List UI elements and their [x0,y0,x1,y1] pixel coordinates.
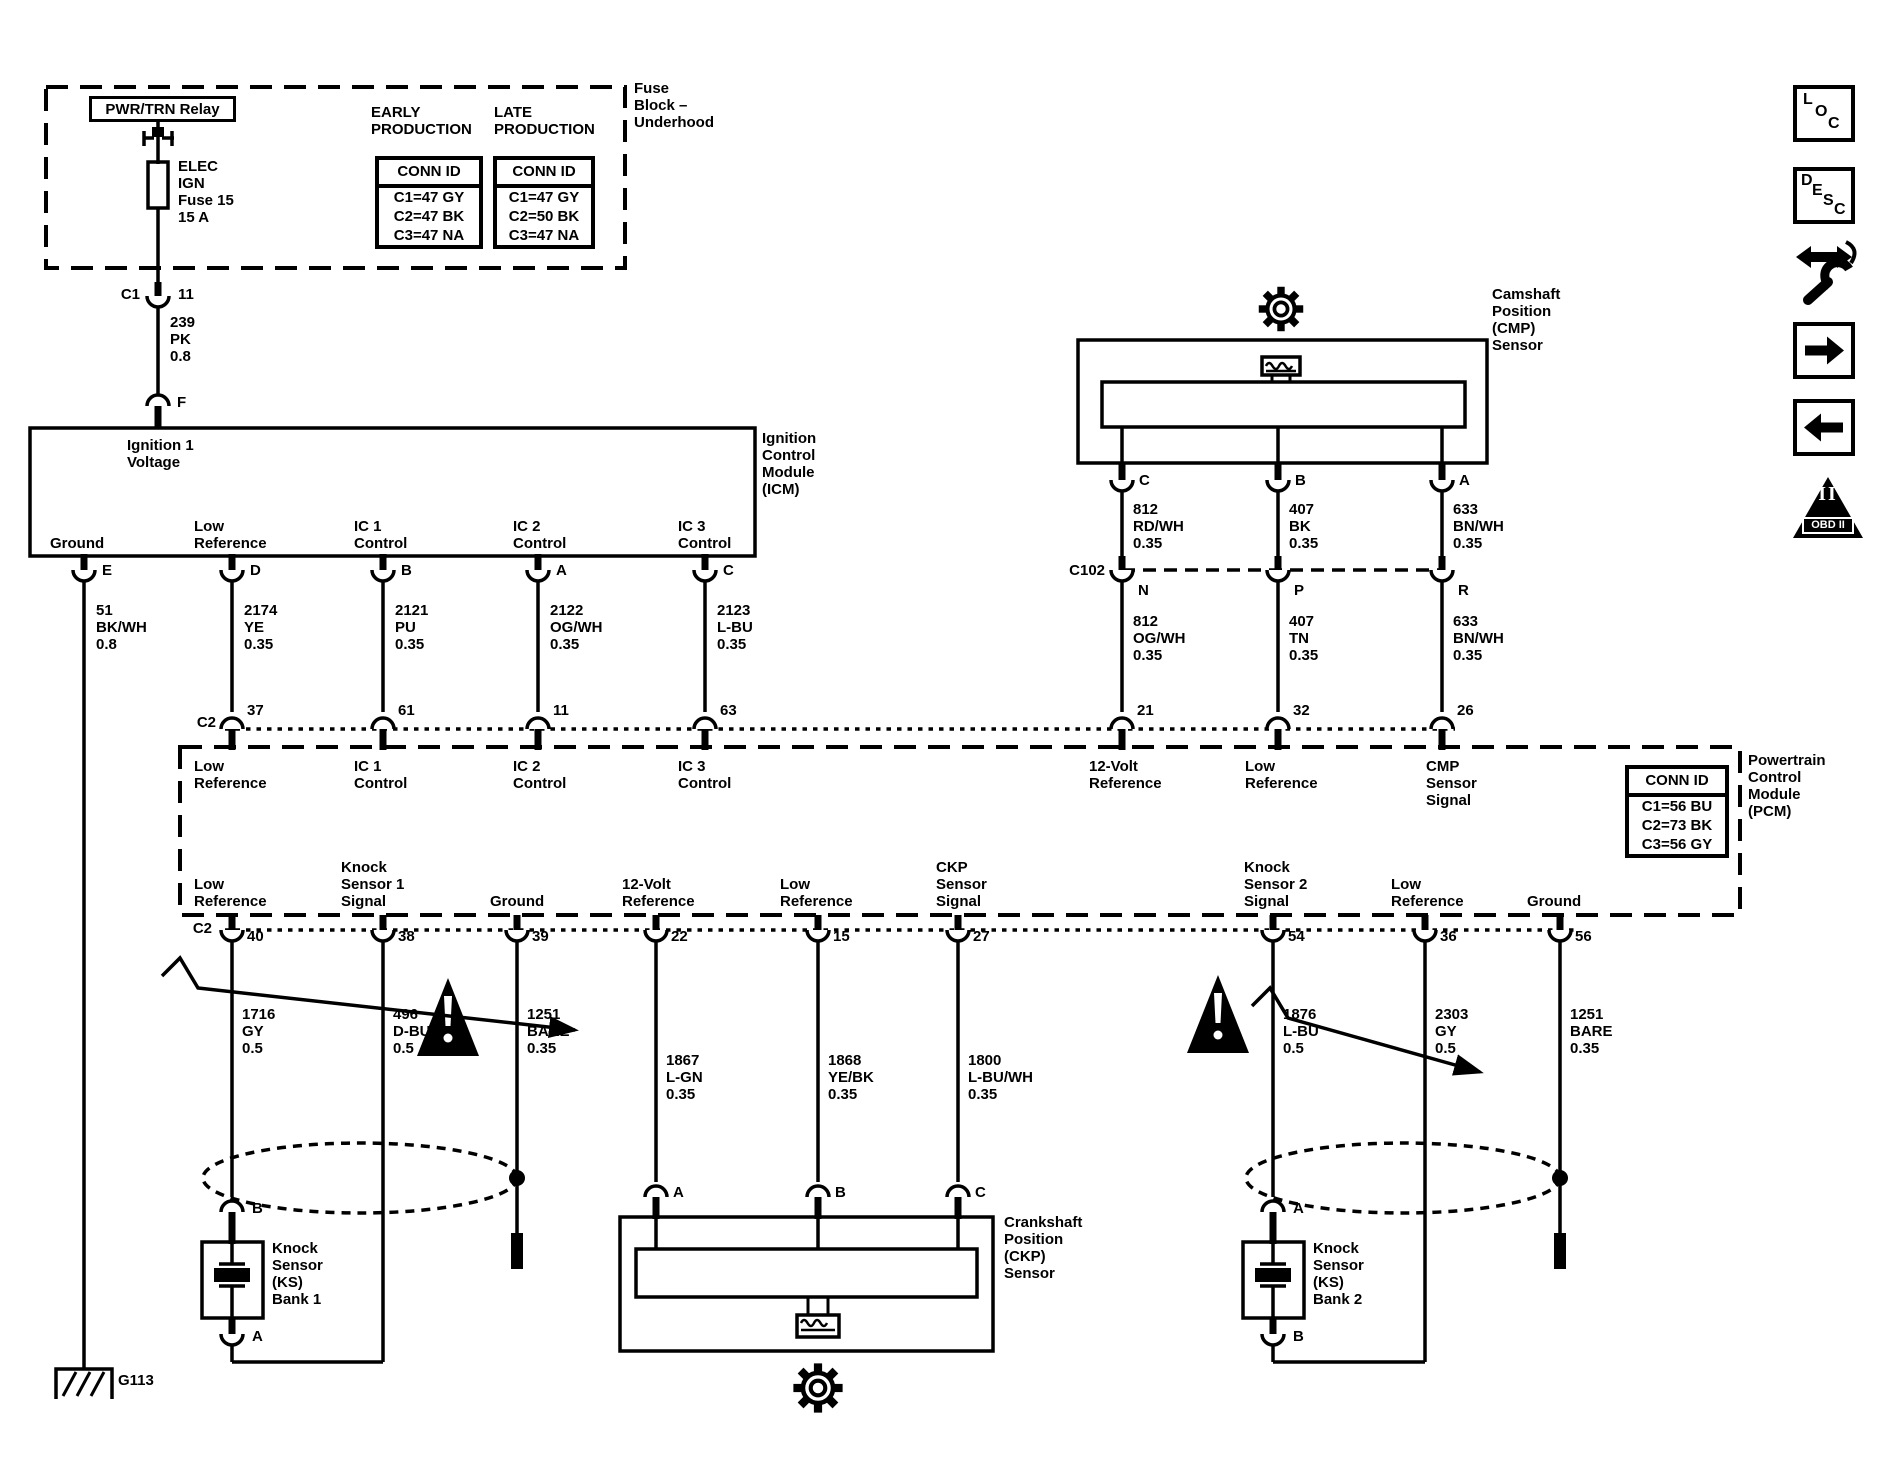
wire-spec: 51 BK/WH 0.8 [96,602,147,653]
connector-cup [221,718,243,729]
wire-spec: 239 PK 0.8 [170,314,195,365]
pcm-pin-number: 63 [720,702,737,719]
ks2-bottom-pin-letter: B [1293,1328,1304,1345]
connector-cup [1111,718,1133,729]
ks1-bottom-pin-letter: A [252,1328,263,1345]
back-arrow-button[interactable] [1793,399,1855,456]
pcm-pin-number: 32 [1293,702,1310,719]
pcm-pin-number: 38 [398,928,415,945]
pcm-pin-function: Low Reference [780,876,853,910]
wire-spec: 1868 YE/BK 0.35 [828,1052,874,1103]
ks1-top-pin-letter: B [252,1200,263,1217]
cmp-sensor-label: Camshaft Position (CMP) Sensor [1492,286,1560,354]
pcm-outside-label: Powertrain Control Module (PCM) [1748,752,1826,820]
table-header: CONN ID [379,160,479,188]
connector-cup [1262,1201,1284,1212]
wire-spec: 407 TN 0.35 [1289,613,1318,664]
wiring-diagram-canvas: PWR/TRN Relay ELEC IGN Fuse 15 15 A Fuse… [0,0,1901,1476]
connector-cup [1111,570,1133,581]
wire-spec: 1251 BARE 0.35 [1570,1006,1613,1057]
pcm-pin-function: 12-Volt Reference [1089,758,1162,792]
icm-pin-letter: A [556,562,567,579]
pcm-pin-function: IC 1 Control [354,758,407,792]
ks2-label: Knock Sensor (KS) Bank 2 [1313,1240,1364,1308]
ckp-inner-bar [636,1249,977,1297]
piezo-element [1255,1268,1291,1282]
cmp-element [1262,357,1300,375]
wire-spec: 2174 YE 0.35 [244,602,277,653]
connector-cup [221,1334,243,1345]
ckp-element [797,1315,839,1337]
table-row: C3=47 NA [497,226,591,245]
c102-pin-letter: P [1294,582,1304,599]
pcm-conn-id-table: CONN ID C1=56 BU C2=73 BK C3=56 GY [1625,765,1729,858]
icm-pin-letter: C [723,562,734,579]
relay-contact [152,127,164,137]
connector-cup [947,1186,969,1197]
ckp-pin-letter: B [835,1184,846,1201]
c102-pin-letter: N [1138,582,1149,599]
wire-spec: 407 BK 0.35 [1289,501,1318,552]
loc-button[interactable]: LOC [1793,85,1855,142]
icm-pin-letter: D [250,562,261,579]
pcm-pin-number: 11 [553,702,569,719]
connector-cup [527,570,549,581]
c102-pin-letter: R [1458,582,1469,599]
loc-letter: L [1803,92,1813,108]
fuse-label: ELEC IGN Fuse 15 15 A [178,158,234,226]
forward-arrow-button[interactable] [1793,322,1855,379]
connector-c1-pin: 11 [178,286,194,303]
fuse-block-label: Fuse Block – Underhood [634,80,714,131]
table-row: C2=47 BK [379,207,479,226]
connector-cup [1431,570,1453,581]
wire-spec: 1800 L-BU/WH 0.35 [968,1052,1033,1103]
wire [77,1372,90,1396]
pcm-pin-function: CMP Sensor Signal [1426,758,1477,809]
cmp-pin-letter: A [1459,472,1470,489]
wire [91,1372,104,1396]
pcm-pin-number: 37 [247,702,264,719]
late-conn-id-table: CONN ID C1=47 GY C2=50 BK C3=47 NA [493,156,595,249]
table-row: C2=50 BK [497,207,591,226]
desc-letter: S [1823,193,1834,209]
connector-cup [947,930,969,941]
wrench-swap-icon[interactable] [1792,236,1864,311]
pcm-pin-number: 27 [973,928,990,945]
connector-c102-label: C102 [1043,562,1105,579]
fuse-symbol [148,162,168,208]
note-arrow [162,958,575,1030]
early-production-heading: EARLY PRODUCTION [371,104,472,138]
wire-spec: 496 D-BU 0.5 [393,1006,431,1057]
ckp-pin-letter: A [673,1184,684,1201]
ckp-sensor-label: Crankshaft Position (CKP) Sensor [1004,1214,1082,1282]
desc-letter: E [1812,183,1823,199]
icm-pin-function: IC 1 Control [354,518,407,552]
wire [63,1372,76,1396]
ckp-pin-letter: C [975,1184,986,1201]
pcm-pin-function: IC 2 Control [513,758,566,792]
table-row: C1=47 GY [379,188,479,207]
icm-pin-letter: B [401,562,412,579]
warning-exclamation-dot [444,1034,453,1043]
pcm-pin-function: IC 3 Control [678,758,731,792]
shield-terminal [1554,1233,1566,1269]
pcm-pin-number: 36 [1440,928,1457,945]
wire-spec: 2121 PU 0.35 [395,602,428,653]
piezo-element [214,1268,250,1282]
pcm-pin-function: Ground [490,893,544,910]
connector-cup [1414,930,1436,941]
wire-spec: 2122 OG/WH 0.35 [550,602,603,653]
ks1-label: Knock Sensor (KS) Bank 1 [272,1240,323,1308]
connector-cup [1549,930,1571,941]
table-header: CONN ID [497,160,591,188]
loc-letter: O [1815,104,1827,120]
connector-cup [1431,480,1453,491]
wire-spec: 2303 GY 0.5 [1435,1006,1468,1057]
wire-spec: 2123 L-BU 0.35 [717,602,753,653]
wire-spec: 812 OG/WH 0.35 [1133,613,1186,664]
pcm-pin-number: 56 [1575,928,1592,945]
pcm-pin-number: 54 [1288,928,1305,945]
connector-cup [147,296,169,307]
gear-icon [1259,287,1303,331]
pcm-pin-number: 21 [1137,702,1154,719]
pcm-pin-function: Knock Sensor 1 Signal [341,859,404,910]
junction-dot [509,1170,525,1186]
loc-letter: C [1828,116,1840,132]
connector-cup [807,930,829,941]
connector-cup [147,395,169,406]
connector-cup [1267,570,1289,581]
cmp-pin-letter: C [1139,472,1150,489]
connector-cup [221,570,243,581]
connector-cup [221,1201,243,1212]
shield-terminal [511,1233,523,1269]
desc-button[interactable]: DESC [1793,167,1855,224]
pcm-top-connector-label: C2 [172,714,216,731]
connector-cup [1267,718,1289,729]
ground-label: G113 [118,1372,154,1389]
pcm-pin-function: Low Reference [1245,758,1318,792]
desc-letter: D [1801,173,1813,189]
connector-cup [1111,480,1133,491]
wire-spec: 633 BN/WH 0.35 [1453,613,1504,664]
wire-spec: 633 BN/WH 0.35 [1453,501,1504,552]
icm-pin-function: Ground [50,535,104,552]
pcm-pin-number: 15 [833,928,850,945]
connector-cup [372,930,394,941]
connector-cup [1431,718,1453,729]
pcm-pin-number: 61 [398,702,415,719]
table-row: C1=56 BU [1629,797,1725,816]
connector-cup [1267,480,1289,491]
cmp-inner-bar [1102,382,1465,427]
connector-c1-label: C1 [96,286,140,303]
connector-cup [1262,1334,1284,1345]
icm-pin-function: Low Reference [194,518,267,552]
wire-spec: 1867 L-GN 0.35 [666,1052,703,1103]
shield-ellipse [203,1143,517,1213]
early-conn-id-table: CONN ID C1=47 GY C2=47 BK C3=47 NA [375,156,483,249]
connector-cup [694,718,716,729]
icm-pin-function: IC 3 Control [678,518,731,552]
icm-input-label: Ignition 1 Voltage [127,437,194,471]
pwr-trn-relay-box: PWR/TRN Relay [89,96,236,122]
pcm-bottom-connector-label: C2 [168,920,212,937]
icm-outside-label: Ignition Control Module (ICM) [762,430,816,498]
wire-spec: 1716 GY 0.5 [242,1006,275,1057]
late-production-heading: LATE PRODUCTION [494,104,595,138]
icm-pin-function: IC 2 Control [513,518,566,552]
pcm-pin-function: CKP Sensor Signal [936,859,987,910]
pcm-pin-function: Ground [1527,893,1581,910]
connector-cup [1262,930,1284,941]
wire-spec: 1251 BARE 0.35 [527,1006,570,1057]
pcm-pin-function: Low Reference [194,876,267,910]
table-row: C3=56 GY [1629,835,1725,854]
desc-letter: C [1834,202,1846,218]
ks2-top-pin-letter: A [1293,1200,1304,1217]
table-header: CONN ID [1629,769,1725,797]
pcm-pin-function: 12-Volt Reference [622,876,695,910]
obd-ii-numeral: II [1818,484,1838,504]
pcm-pin-function: Low Reference [194,758,267,792]
pcm-pin-number: 39 [532,928,549,945]
connector-cup [645,930,667,941]
cmp-element-squiggle [1266,363,1292,369]
pcm-pin-number: 26 [1457,702,1474,719]
connector-cup [372,718,394,729]
wire-spec: 1876 L-BU 0.5 [1283,1006,1319,1057]
connector-cup [73,570,95,581]
table-row: C2=73 BK [1629,816,1725,835]
obd-ii-icon[interactable]: II OBD II [1791,475,1865,541]
connector-cup [221,930,243,941]
pcm-pin-function: Low Reference [1391,876,1464,910]
ckp-element-squiggle [801,1320,827,1326]
connector-cup [527,718,549,729]
icm-top-pin-letter: F [177,394,186,411]
connector-cup [372,570,394,581]
pcm-pin-number: 40 [247,928,264,945]
junction-dot [1552,1170,1568,1186]
connector-cup [807,1186,829,1197]
wire-spec: 812 RD/WH 0.35 [1133,501,1184,552]
connector-cup [694,570,716,581]
cmp-pin-letter: B [1295,472,1306,489]
table-row: C1=47 GY [497,188,591,207]
table-row: C3=47 NA [379,226,479,245]
pcm-pin-number: 22 [671,928,688,945]
obd-ii-label: OBD II [1802,517,1854,534]
connector-cup [645,1186,667,1197]
warning-exclamation-dot [1214,1031,1223,1040]
connector-cup [506,930,528,941]
gear-icon [793,1363,842,1412]
pcm-pin-function: Knock Sensor 2 Signal [1244,859,1307,910]
icm-pin-letter: E [102,562,112,579]
